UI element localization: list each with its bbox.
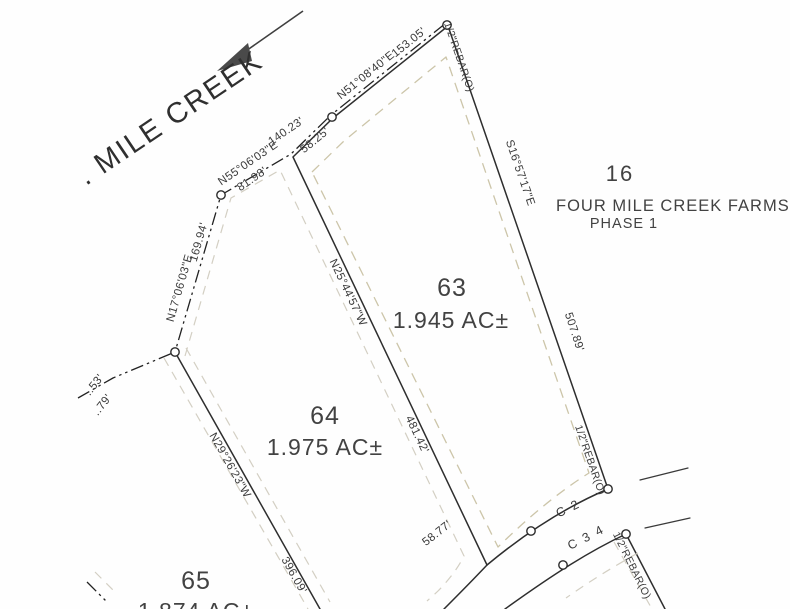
lot-63-area: 1.945 AC± [393, 307, 509, 333]
curve-label-c2: C 2 [554, 497, 583, 521]
survey-marker [171, 348, 179, 356]
lot-labels: 63 1.945 AC± 64 1.975 AC± 65 1.874 AC± [138, 274, 509, 609]
road-curve-c2-continuation [444, 565, 487, 609]
distance-label-lot63-west: 481.42' [403, 414, 431, 455]
lot-63-number: 63 [437, 274, 467, 302]
adjacent-parcel-labels: 16 FOUR MILE CREEK FARMS PHASE 1 [556, 161, 790, 232]
lot-65-number: 65 [181, 567, 211, 595]
road-curve-c3-4 [505, 534, 626, 609]
road-edge-east-lower [645, 518, 690, 528]
survey-marker [559, 561, 567, 569]
distance-label-east: 507.89' [562, 311, 586, 353]
creek-meander-line-continuation [87, 582, 107, 602]
lot-65-creek-setback-line [95, 572, 115, 592]
lot-64-setback-line [185, 170, 464, 601]
distance-label-creek-upper: 140.23' [266, 115, 306, 148]
creek-meander-line [78, 23, 446, 398]
lot-65-area: 1.874 AC± [138, 598, 254, 609]
bearing-label-lot65-line: N29°26'23"W [206, 431, 252, 500]
plat-map-svg: . MILE CREEK N51°08'40"E 153.05' N55°06'… [0, 0, 790, 609]
distance-fragment-79: ..79' [91, 392, 115, 418]
road-edge-east-upper [640, 468, 688, 480]
plat-map-page: . MILE CREEK N51°08'40"E 153.05' N55°06'… [0, 0, 790, 609]
bearing-label-east: S16°57'17"E [503, 138, 537, 207]
lot-64-area: 1.975 AC± [267, 434, 383, 460]
adjacent-subdivision-name: FOUR MILE CREEK FARMS [556, 197, 790, 215]
survey-marker [328, 113, 336, 121]
curve-label-c3-4: C 3 4 [565, 522, 607, 553]
distance-label-top: 153.05' [390, 25, 429, 59]
bearing-label-creek-lower: N17°06'03"E [165, 253, 196, 323]
survey-marker [527, 527, 535, 535]
lot-64-number: 64 [310, 402, 340, 430]
lot-64-southwest-setback-line [186, 348, 330, 602]
adjacent-parcel-number: 16 [606, 161, 634, 186]
distance-label-road-frontage: 58.77' [420, 519, 454, 549]
bearing-label-top: N51°08'40"E [335, 49, 397, 102]
bearing-label-lot63-west: N25°44'57"W [327, 257, 369, 328]
adjacent-subdivision-phase: PHASE 1 [590, 216, 658, 232]
survey-marker [217, 191, 225, 199]
distance-label-lot63-creek-frontage: 58.25' [298, 126, 331, 156]
